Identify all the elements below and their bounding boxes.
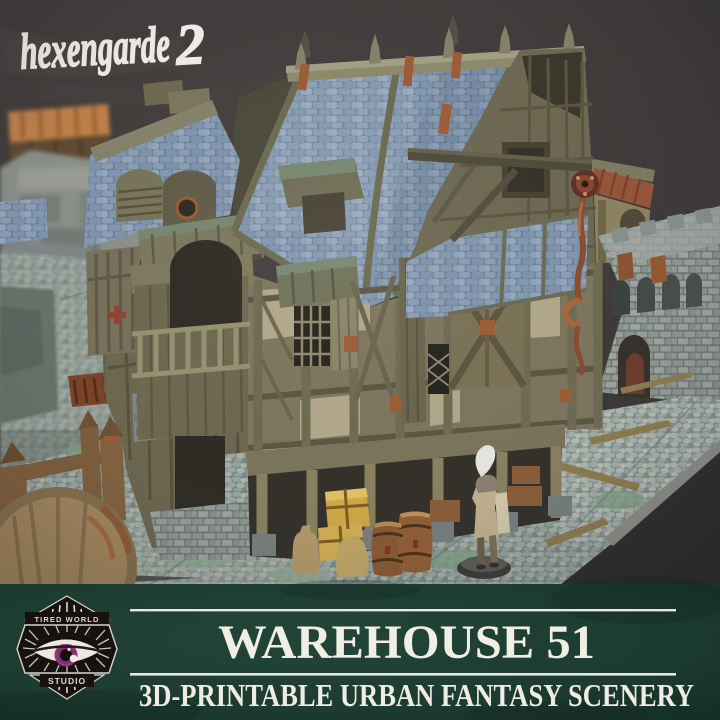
svg-text:WAREHOUSE 51: WAREHOUSE 51: [218, 616, 595, 669]
svg-text:STUDIO: STUDIO: [48, 676, 86, 686]
svg-text:TIRED WORLD: TIRED WORLD: [34, 615, 99, 624]
svg-text:3D-PRINTABLE URBAN FANTASY SCE: 3D-PRINTABLE URBAN FANTASY SCENERY: [139, 677, 694, 713]
